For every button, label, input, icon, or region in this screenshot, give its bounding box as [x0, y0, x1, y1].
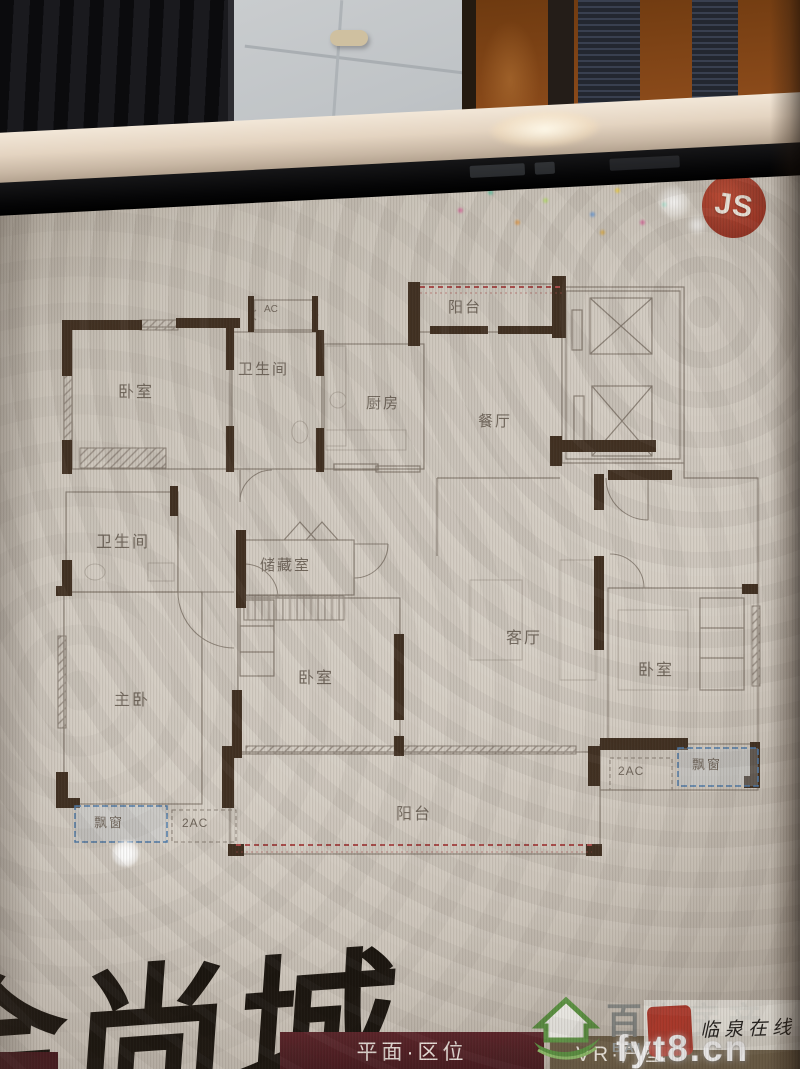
room-label-ac-right: 2AC: [618, 764, 644, 778]
room-label-master-bedroom: 主卧: [114, 686, 150, 710]
watermark-site-url: fyt8.cn: [616, 1028, 749, 1069]
baiyue-logo: [528, 986, 604, 1066]
room-label-bay-window-right: 飘窗: [692, 754, 722, 773]
room-label-bay-window-left: 飘窗: [94, 812, 124, 831]
bay-window-boxes: [75, 748, 758, 842]
room-label-kitchen: 厨房: [366, 392, 400, 413]
room-label-ac-left: 2AC: [182, 816, 208, 830]
photo-of-kiosk-screen: { "screen_logo": { "text": "JS" }, "floo…: [0, 0, 800, 1069]
room-label-balcony-top: 阳台: [448, 296, 482, 317]
room-label-bath-mid: 卫生间: [96, 528, 150, 552]
tab-bar-corner: [0, 1052, 58, 1069]
floorplan-doors: [178, 470, 648, 648]
tab-plan-location[interactable]: 平面·区位: [280, 1032, 544, 1069]
floorplan-windows: [58, 320, 760, 754]
tab-plan-location-label: 平面·区位: [357, 1036, 468, 1066]
floorplan-elevators: [562, 287, 684, 463]
room-label-bedroom-top-left: 卧室: [118, 378, 154, 402]
room-label-storage: 储藏室: [260, 554, 311, 575]
beam-light-glow: [489, 108, 601, 150]
bezel-reflection: [470, 163, 526, 178]
room-label-balcony-bottom: 阳台: [396, 800, 432, 824]
kiosk-screen: JS: [0, 168, 800, 1069]
floorplan-walls: [56, 276, 760, 856]
room-label-dining: 餐厅: [478, 410, 512, 431]
floorplan-drawing: [0, 168, 800, 1069]
room-label-ac-top: AC: [264, 304, 278, 315]
room-label-bedroom-right: 卧室: [638, 656, 674, 680]
tile-grout-line: [245, 45, 464, 75]
floorplan-room-outlines: [64, 284, 758, 854]
light-reflection: [112, 840, 139, 867]
small-object-on-floor: [330, 30, 368, 46]
room-label-living-room: 客厅: [506, 624, 542, 648]
room-label-bedroom-mid: 卧室: [298, 664, 334, 688]
bezel-reflection: [609, 155, 680, 171]
room-label-bath-top: 卫生间: [238, 358, 289, 379]
bezel-reflection: [534, 162, 555, 175]
